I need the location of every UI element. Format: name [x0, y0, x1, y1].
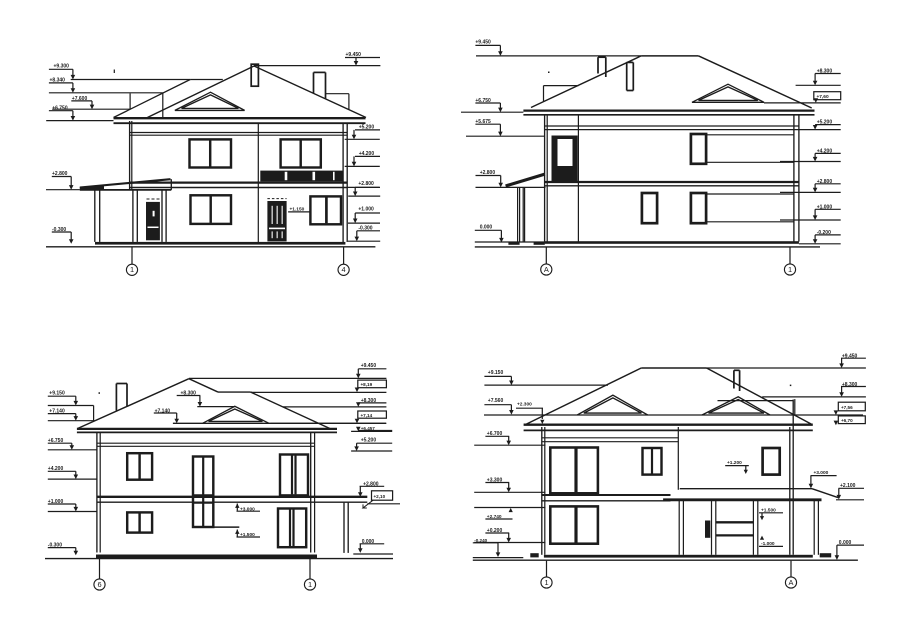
svg-text:+7,56: +7,56 [841, 405, 853, 410]
svg-text:1: 1 [130, 265, 134, 274]
svg-text:6: 6 [97, 580, 101, 589]
svg-text:1: 1 [788, 265, 792, 274]
svg-text:+7,60: +7,60 [817, 94, 829, 100]
svg-text:+7.560: +7.560 [488, 398, 504, 404]
svg-text:+8,19: +8,19 [361, 382, 373, 387]
svg-text:4: 4 [342, 265, 346, 274]
svg-text:А: А [544, 265, 549, 274]
svg-text:1: 1 [544, 578, 548, 587]
svg-text:+2,10: +2,10 [374, 494, 386, 499]
svg-text:-0.240: -0.240 [474, 538, 487, 543]
svg-text:+6,70: +6,70 [841, 418, 853, 423]
svg-text:+9.150: +9.150 [488, 370, 504, 376]
svg-text:+7,14: +7,14 [361, 413, 373, 418]
svg-text:+2.300: +2.300 [517, 401, 532, 407]
svg-text:+2.800: +2.800 [358, 181, 374, 187]
svg-text:А: А [789, 578, 794, 587]
svg-text:+9.300: +9.300 [54, 64, 70, 70]
svg-text:+1.000: +1.000 [358, 207, 374, 213]
svg-text:1: 1 [308, 580, 312, 589]
